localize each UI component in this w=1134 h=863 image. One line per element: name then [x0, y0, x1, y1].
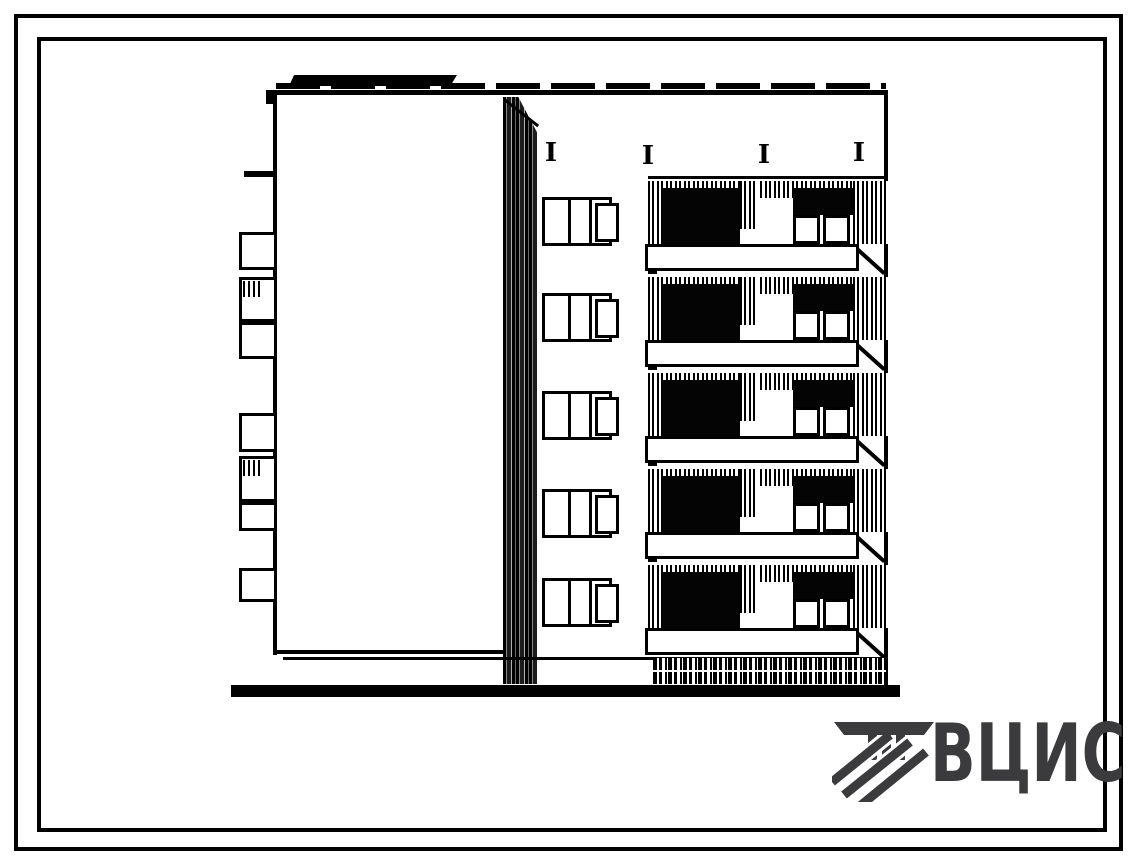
gable-wall [275, 95, 503, 655]
loggia-module [645, 178, 888, 274]
anchor-mark: I [851, 142, 867, 166]
balcony-window-pane [793, 215, 820, 244]
anchor-mark: I [756, 144, 772, 168]
balcony-slab [645, 628, 859, 655]
balcony-window-pane [823, 407, 850, 436]
window-sash [595, 203, 619, 242]
side-balcony [239, 277, 277, 322]
balcony-window-pane [823, 215, 850, 244]
balcony-slab [645, 244, 859, 271]
railing-hatch [648, 373, 662, 436]
loggia-opening [662, 284, 740, 340]
facade-window [542, 578, 612, 627]
loggia-opening [662, 572, 740, 628]
window-mullion [589, 200, 592, 243]
gable-wall-bottom-edge [275, 650, 503, 654]
parapet-coping [276, 83, 886, 89]
window-mullion [568, 394, 571, 437]
corner-shadow-strip [503, 97, 537, 684]
loggia-module [645, 562, 888, 658]
facade-window [542, 293, 612, 342]
loggia-opening [662, 476, 740, 532]
loggia-module [645, 466, 888, 562]
facade-window [542, 197, 612, 246]
vcis-emblem-icon [832, 718, 936, 802]
railing-hatch [853, 469, 888, 532]
loggia-opening [662, 380, 740, 436]
window-mullion [568, 296, 571, 339]
facade-window [542, 489, 612, 538]
balcony-window-pane [793, 503, 820, 532]
window-mullion [568, 200, 571, 243]
ground-line [231, 685, 900, 697]
balcony-window-pane [823, 311, 850, 340]
shadow-hatch [243, 281, 261, 297]
window-mullion [589, 394, 592, 437]
window-mullion [568, 492, 571, 535]
loggia-opening [662, 188, 740, 244]
window-sash [595, 584, 619, 623]
window-mullion [589, 492, 592, 535]
balcony-slab [645, 340, 859, 367]
side-balcony [239, 502, 277, 531]
balcony-door-opening [793, 188, 853, 215]
balcony-window-pane [823, 503, 850, 532]
balcony-rail-diagonal [856, 344, 885, 371]
shadow-hatch [243, 460, 261, 476]
railing-hatch [853, 277, 888, 340]
window-sash [595, 299, 619, 338]
railing-hatch [853, 565, 888, 628]
side-balcony [239, 568, 277, 602]
balcony-rail-diagonal [856, 632, 885, 659]
vcis-logo-text: ВЦИС [930, 714, 1126, 794]
loggia-module [645, 274, 888, 370]
railing-hatch [740, 181, 758, 229]
railing-hatch [740, 469, 758, 517]
balcony-window-pane [793, 311, 820, 340]
balcony-slab [645, 436, 859, 463]
balcony-door-opening [793, 380, 853, 407]
side-balcony [239, 322, 277, 359]
window-sash [595, 495, 619, 534]
railing-hatch [853, 373, 888, 436]
railing-hatch [740, 277, 758, 325]
balcony-rail-diagonal [856, 248, 885, 275]
facade-window [542, 391, 612, 440]
scanned-drawing-page: I I I I [0, 0, 1134, 863]
balcony-door-opening [793, 476, 853, 503]
railing-hatch [853, 181, 888, 244]
side-balcony [239, 232, 277, 270]
railing-hatch [648, 181, 662, 244]
side-balcony [239, 413, 277, 452]
balcony-rail-diagonal [856, 440, 885, 467]
balcony-door-opening [793, 284, 853, 311]
railing-hatch [740, 373, 758, 421]
balcony-window-pane [793, 407, 820, 436]
side-balcony [239, 456, 277, 502]
window-sash [595, 397, 619, 436]
loggia-module [645, 370, 888, 466]
balcony-door-opening [793, 572, 853, 599]
window-mullion [589, 296, 592, 339]
railing-hatch [648, 565, 662, 628]
window-mullion [589, 581, 592, 624]
balcony-window-pane [793, 599, 820, 628]
balcony-rail-diagonal [856, 536, 885, 563]
railing-hatch [648, 469, 662, 532]
balcony-tick [244, 171, 277, 177]
railing-hatch [648, 277, 662, 340]
base-hatch-divider [653, 670, 886, 672]
anchor-mark: I [543, 142, 559, 166]
balcony-slab [645, 532, 859, 559]
railing-hatch [740, 565, 758, 613]
base-shadow-hatch [653, 658, 886, 684]
window-mullion [568, 581, 571, 624]
anchor-mark: I [640, 145, 656, 169]
balcony-window-pane [823, 599, 850, 628]
